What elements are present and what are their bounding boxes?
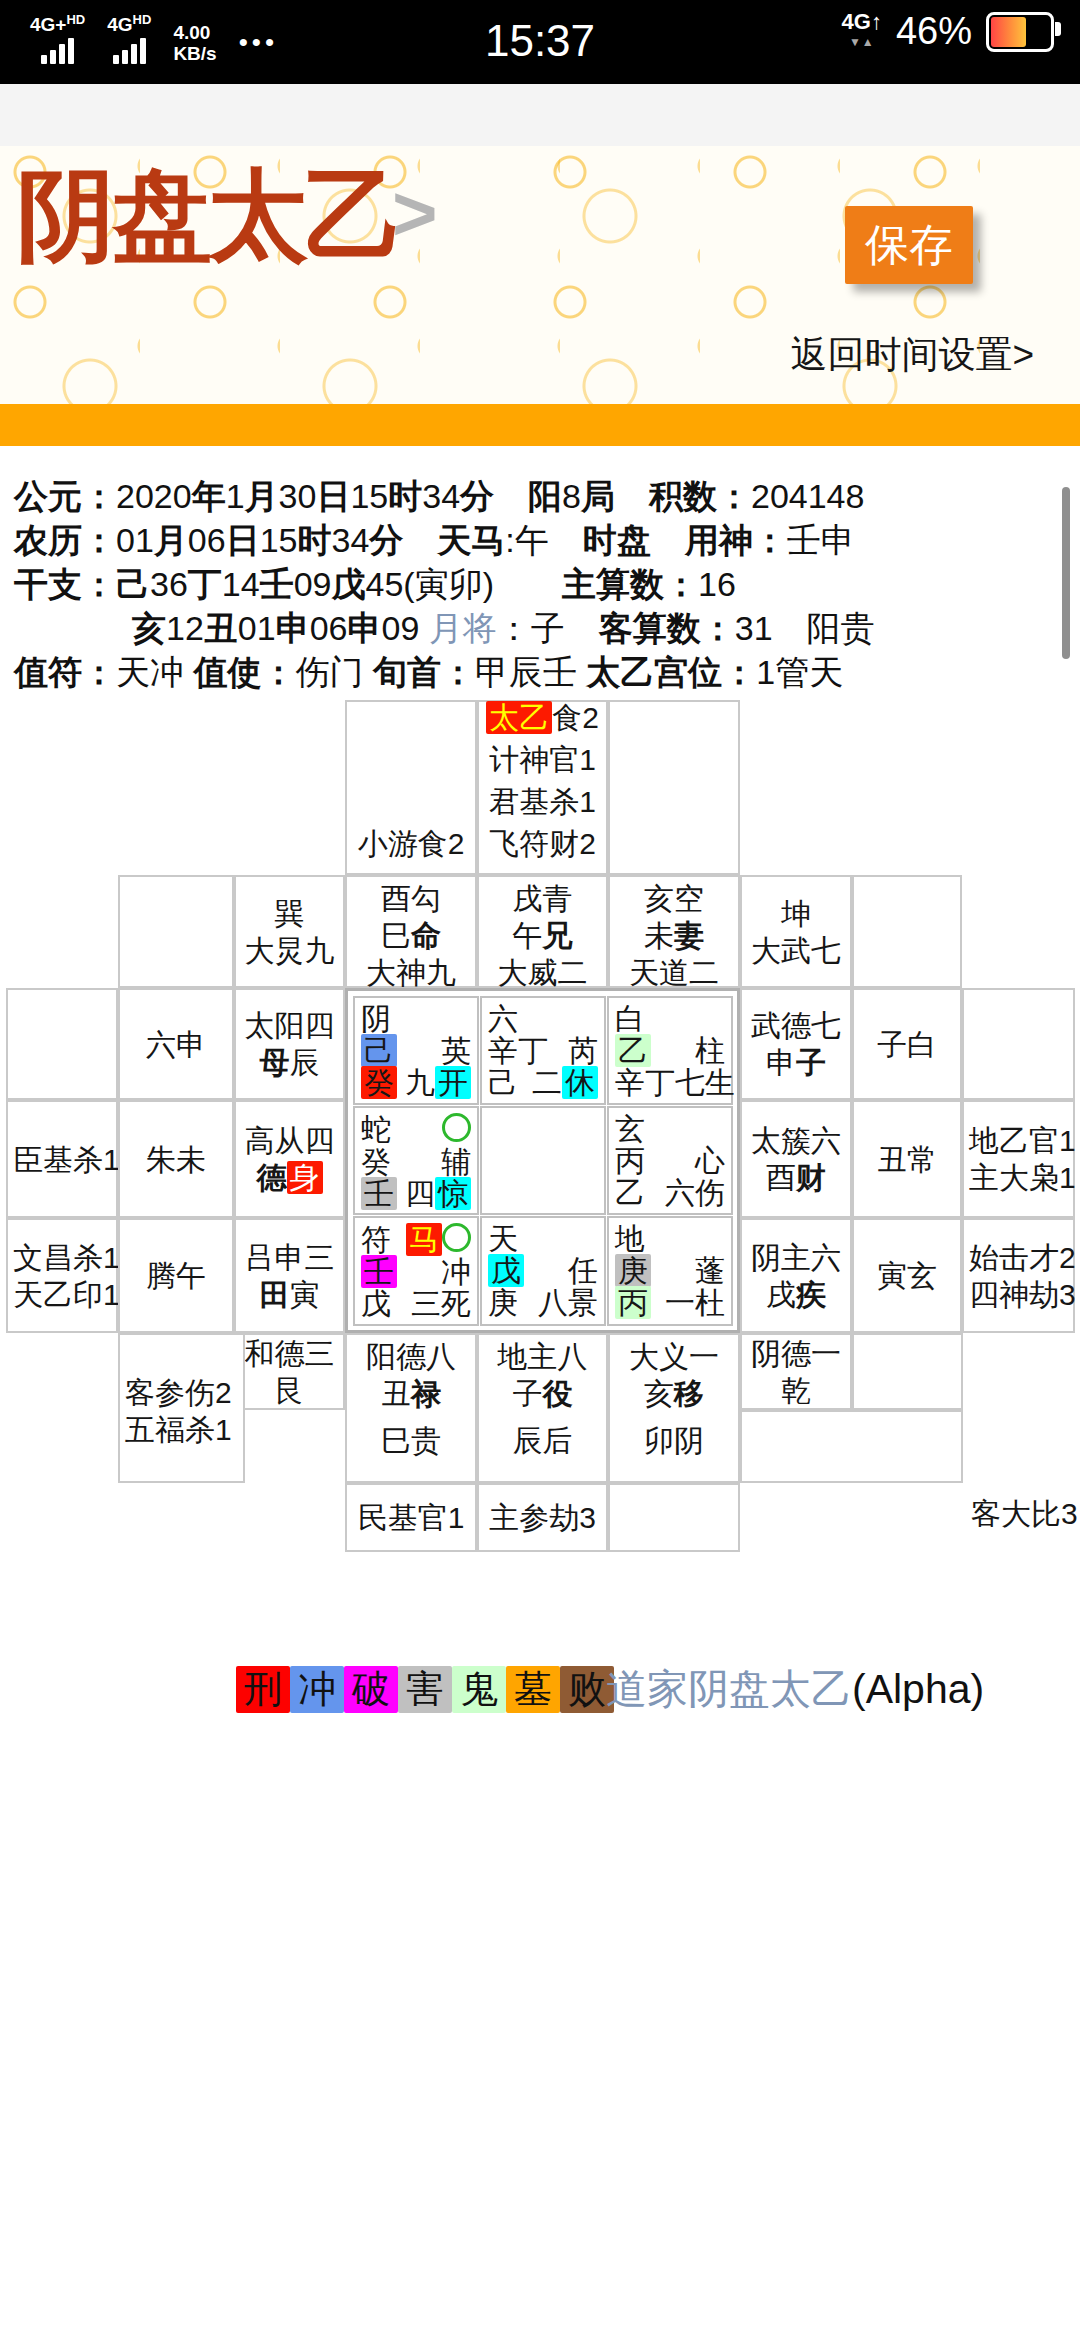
text-segment: 大义一 (629, 1340, 719, 1373)
text-segment: 未 (644, 919, 674, 952)
text-segment: 阴主六 (751, 1241, 841, 1274)
text-segment: 二 (532, 1066, 562, 1099)
text-segment: 客参伤2 (125, 1376, 232, 1409)
text-segment: 天乙印1 (13, 1278, 120, 1311)
cell-lvshen: 吕申三田寅 (234, 1218, 345, 1333)
text-segment: 客大比3 (971, 1497, 1078, 1530)
text-segment: 太阳四 (245, 1009, 335, 1042)
text-segment: 大武七 (751, 934, 841, 967)
text-segment: 乙 (615, 1034, 651, 1067)
text-segment: 道家阴盘太乙 (606, 1666, 852, 1712)
text-segment: 武德七 (751, 1009, 841, 1042)
text-segment: 亥空 (644, 882, 704, 915)
cell-zi-bai: 子白 (852, 988, 962, 1100)
text-segment: 辰后 (513, 1424, 573, 1457)
text-segment: 戌 (766, 1278, 796, 1311)
text-segment: 死 (441, 1287, 471, 1320)
cell-dizhu: 地主八子役辰后 (477, 1333, 608, 1483)
cell-step-empty-tl (118, 875, 234, 988)
inner-cell-3-3: 地庚蓬丙一杜 (607, 1216, 733, 1326)
text-segment: 子 (796, 1046, 826, 1079)
cell-xun-corner: 巽大炅九 (234, 875, 345, 988)
circle-marker-icon (442, 1223, 471, 1252)
legend-swatches: 刑冲破害鬼墓败 (236, 1666, 614, 1713)
cell-xu-qing: 戌青午兄大威二 (477, 875, 608, 988)
text-segment: 四 (405, 1177, 435, 1210)
text-segment: 田 (260, 1278, 290, 1311)
text-segment: 疾 (796, 1278, 826, 1311)
text-segment: 天 (488, 1222, 518, 1255)
cell-taiyang: 太阳四母辰 (234, 988, 345, 1100)
cell-top-empty (608, 700, 740, 875)
text-segment: 禄 (411, 1377, 441, 1410)
text-segment: 冲 (441, 1255, 471, 1288)
text-segment: 九 (405, 1066, 435, 1099)
text-segment: 役 (543, 1377, 573, 1410)
text-segment: 母 (260, 1046, 290, 1079)
text-segment: 天道二 (629, 956, 719, 989)
text-segment: 太乙 (486, 701, 552, 734)
legend-swatch: 害 (398, 1666, 452, 1713)
text-segment: 六 (488, 1002, 518, 1035)
text-segment: 寅 (290, 1278, 320, 1311)
cell-kun-corner: 坤大武七 (740, 875, 852, 988)
text-segment: 阴 (361, 1002, 391, 1035)
text-segment: 地 (615, 1222, 645, 1255)
text-segment: 六申 (146, 1028, 206, 1061)
text-segment: 阴德一 (751, 1337, 841, 1370)
text-segment: 巽 (275, 897, 305, 930)
text-segment: 壬 (361, 1255, 397, 1288)
text-segment: 壬 (361, 1177, 397, 1210)
text-segment: 亥 (644, 1377, 674, 1410)
text-segment: 酉勾 (381, 882, 441, 915)
text-segment: 辰 (290, 1046, 320, 1079)
text-segment: 高从四 (245, 1124, 335, 1157)
text-segment: 阳德八 (366, 1340, 456, 1373)
text-segment: 和德三 (245, 1337, 335, 1370)
inner-cell-3-2: 天戊任庚八景 (480, 1216, 606, 1326)
cell-zhu-wei: 朱未 (118, 1100, 234, 1218)
legend-title: 道家阴盘太乙(Alpha) (606, 1666, 984, 1713)
text-segment: 马 (406, 1223, 442, 1256)
cell-xiaoyoushi: 小游食2 (345, 700, 477, 875)
text-segment: 心 (695, 1144, 725, 1177)
text-segment: 命 (411, 919, 441, 952)
text-segment: 任 (568, 1254, 598, 1287)
text-segment: 坤 (781, 897, 811, 930)
text-segment: 移 (674, 1377, 704, 1410)
text-segment: 开 (435, 1066, 471, 1099)
text-segment: 巳 (381, 919, 411, 952)
cell-outer-empty-r (962, 988, 1075, 1100)
text-segment: 四神劫3 (969, 1278, 1076, 1311)
text-segment: 白 (615, 1002, 645, 1035)
text-segment: 主参劫3 (489, 1501, 596, 1534)
text-segment: 辛丁 (615, 1066, 675, 1099)
cell-zhucan: 主参劫3 (477, 1483, 608, 1552)
inner-cell-1-1: 阴己英癸九开 (353, 996, 479, 1105)
circle-marker-icon (442, 1113, 471, 1142)
text-segment: 七 (675, 1066, 705, 1099)
text-segment: 地主八 (498, 1340, 588, 1373)
cell-minji: 民基官1 (345, 1483, 477, 1552)
text-segment: 小游食2 (358, 827, 465, 860)
text-segment: 身 (287, 1161, 323, 1194)
text-segment: 子 (513, 1377, 543, 1410)
text-segment: 寅玄 (877, 1259, 937, 1292)
cell-wude: 武德七申子 (740, 988, 852, 1100)
cell-chenjisha: 臣基杀1 (6, 1100, 118, 1218)
cell-bottom-empty (608, 1483, 740, 1552)
cell-teng-wu: 腾午 (118, 1218, 234, 1333)
inner-cell-3-1: 符马壬冲戊三死 (353, 1216, 479, 1326)
text-segment: 食2 (552, 701, 599, 734)
text-segment: 大威二 (498, 956, 588, 989)
text-segment: 癸 (361, 1145, 391, 1178)
text-segment: 蓬 (695, 1254, 725, 1287)
text-segment: 大炅九 (245, 934, 335, 967)
text-segment: 财 (796, 1161, 826, 1194)
text-segment: 八 (538, 1286, 568, 1319)
text-segment: 子白 (877, 1028, 937, 1061)
text-segment: 地乙官1 (969, 1124, 1076, 1157)
text-segment: 大神九 (366, 956, 456, 989)
text-segment: 伤 (695, 1176, 725, 1209)
inner-cell-2-3: 玄丙心乙六伤 (607, 1106, 733, 1215)
cell-gen-corner: 和德三艮 (234, 1333, 345, 1410)
cell-chou-chang: 丑常 (852, 1100, 962, 1218)
cell-hai-kong: 亥空未妻天道二 (608, 875, 740, 988)
cell-step-empty-br1 (852, 1333, 963, 1410)
text-segment: 玄 (615, 1112, 645, 1145)
text-segment: 兄 (543, 919, 573, 952)
cell-dayi: 大义一亥移卯阴 (608, 1333, 740, 1483)
text-segment: 飞符财2 (489, 827, 596, 860)
text-segment: 六 (665, 1176, 695, 1209)
text-segment: 申 (766, 1046, 796, 1079)
cell-outer-empty-l (6, 988, 118, 1100)
text-segment: 己 (361, 1034, 397, 1067)
cell-diyi: 地乙官1主大枭1 (962, 1100, 1075, 1218)
text-segment: 符 (361, 1223, 391, 1256)
cell-taiyi: 太乙食2计神官1君基杀1飞符财2 (477, 700, 608, 875)
cell-shiji: 始击才2四神劫3 (962, 1218, 1075, 1333)
text-segment: 丙 (615, 1144, 645, 1177)
cell-qian-corner: 阴德一乾 (740, 1333, 852, 1410)
text-segment: 杜 (695, 1286, 725, 1319)
legend-swatch: 破 (344, 1666, 398, 1713)
text-segment: 主大枭1 (969, 1161, 1076, 1194)
text-segment: 腾午 (146, 1259, 206, 1292)
text-segment: 艮 (275, 1374, 305, 1407)
label-kedabi: 客大比3 (966, 1492, 1078, 1536)
inner-cell-1-3: 白乙柱辛丁七生 (607, 996, 733, 1105)
cell-step-empty-tr (852, 875, 962, 988)
cell-liu-shen: 六申 (118, 988, 234, 1100)
text-segment: 生 (705, 1066, 735, 1099)
legend-swatch: 墓 (506, 1666, 560, 1713)
board: 小游食2太乙食2计神官1君基杀1飞符财2酉勾巳命大神九戌青午兄大威二亥空未妻天道… (0, 0, 1080, 2340)
text-segment: 辅 (441, 1145, 471, 1178)
text-segment: 丙 (615, 1286, 651, 1319)
text-segment: 芮 (568, 1034, 598, 1067)
text-segment: (Alpha) (852, 1666, 984, 1712)
text-segment: 辛丁 (488, 1034, 548, 1067)
text-segment: 民基官1 (358, 1501, 465, 1534)
text-segment: 君基杀1 (489, 785, 596, 818)
text-segment: 戊 (361, 1287, 391, 1320)
text-segment: 始击才2 (969, 1241, 1076, 1274)
text-segment: 丑 (381, 1377, 411, 1410)
text-segment: 一 (665, 1286, 695, 1319)
text-segment: 柱 (695, 1034, 725, 1067)
cell-yinzhu: 阴主六戌疾 (740, 1218, 852, 1333)
text-segment: 休 (562, 1066, 598, 1099)
text-segment: 巳贵 (381, 1424, 441, 1457)
text-segment: 乙 (615, 1176, 645, 1209)
text-segment: 太簇六 (751, 1124, 841, 1157)
text-segment: 己 (488, 1066, 518, 1099)
text-segment: 计神官1 (489, 743, 596, 776)
text-segment: 庚 (488, 1286, 518, 1319)
cell-wenchang: 文昌杀1天乙印1 (6, 1218, 118, 1333)
cell-you-gou: 酉勾巳命大神九 (345, 875, 477, 988)
text-segment: 德 (257, 1161, 287, 1194)
cell-taicou: 太簇六酉财 (740, 1100, 852, 1218)
legend-swatch: 刑 (236, 1666, 290, 1713)
text-segment: 戊 (488, 1254, 524, 1287)
text-segment: 吕申三 (245, 1241, 335, 1274)
text-segment: 乾 (781, 1374, 811, 1407)
text-segment: 文昌杀1 (13, 1241, 120, 1274)
legend-swatch: 冲 (290, 1666, 344, 1713)
text-segment: 臣基杀1 (13, 1143, 120, 1176)
cell-yangde: 阳德八丑禄巳贵 (345, 1333, 477, 1483)
inner-cell-1-2: 六辛丁芮己二休 (480, 996, 606, 1105)
inner-cell-2-2 (480, 1106, 606, 1215)
inner-cell-2-1: 蛇癸辅壬四惊 (353, 1106, 479, 1215)
text-segment: 蛇 (361, 1113, 391, 1146)
cell-kecanshang: 客参伤2五福杀1 (118, 1333, 245, 1483)
text-segment: 妻 (674, 919, 704, 952)
text-segment: 戌青 (513, 882, 573, 915)
text-segment: 朱未 (146, 1143, 206, 1176)
text-segment: 英 (441, 1034, 471, 1067)
text-segment: 丑常 (877, 1143, 937, 1176)
cell-gaocong: 高从四德身 (234, 1100, 345, 1218)
text-segment: 午 (513, 919, 543, 952)
text-segment: 酉 (766, 1161, 796, 1194)
text-segment: 景 (568, 1286, 598, 1319)
cell-step-empty-br2 (740, 1410, 963, 1483)
text-segment: 惊 (435, 1177, 471, 1210)
text-segment: 卯阴 (644, 1424, 704, 1457)
legend-swatch: 鬼 (452, 1666, 506, 1713)
text-segment: 庚 (615, 1254, 651, 1287)
cell-yin-xuan: 寅玄 (852, 1218, 962, 1333)
text-segment: 三 (411, 1287, 441, 1320)
text-segment: 五福杀1 (125, 1413, 232, 1446)
text-segment: 癸 (361, 1066, 397, 1099)
